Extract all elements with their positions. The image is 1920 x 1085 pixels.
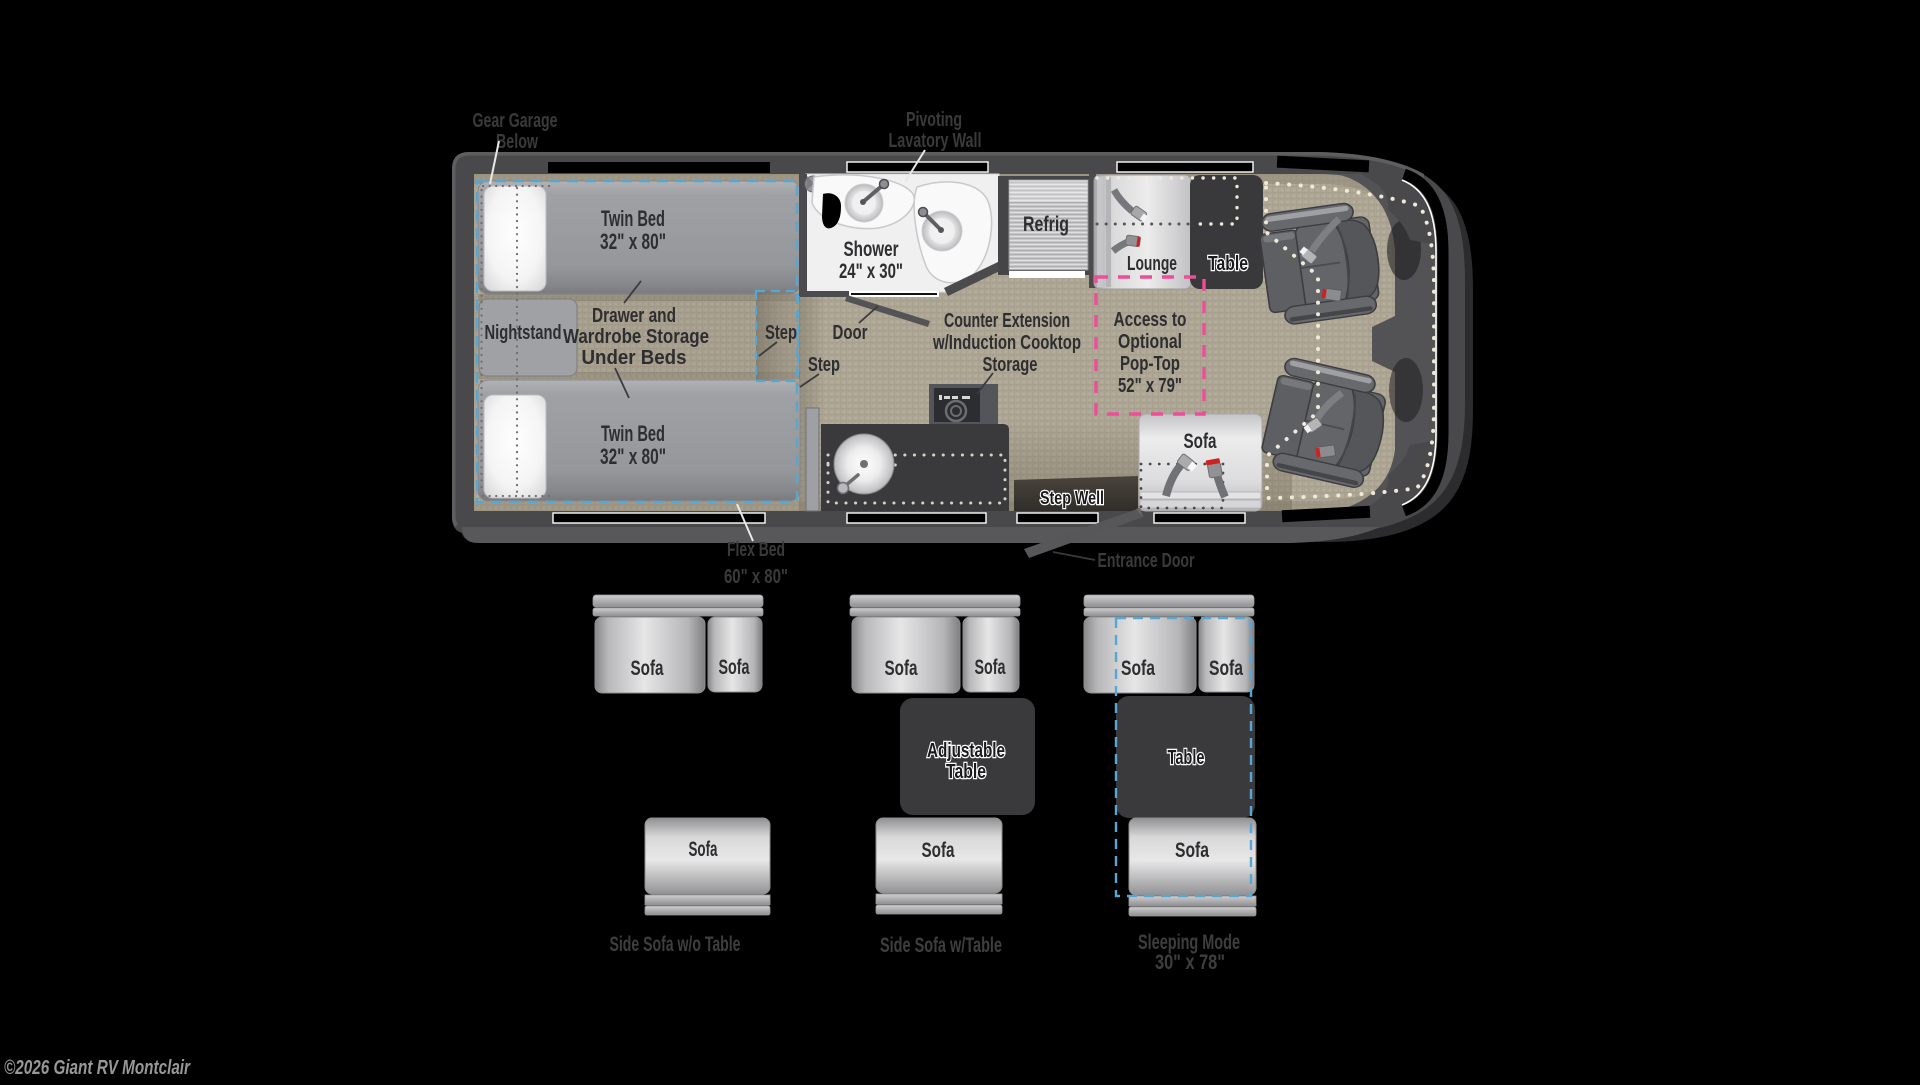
svg-text:Sofa: Sofa <box>631 657 664 680</box>
svg-text:Shower: Shower <box>844 238 899 261</box>
svg-text:Pivoting: Pivoting <box>906 109 962 131</box>
svg-text:Sofa: Sofa <box>689 838 718 861</box>
svg-text:Wardrobe Storage: Wardrobe Storage <box>563 326 709 348</box>
svg-text:24" x 30": 24" x 30" <box>839 260 903 283</box>
svg-text:Nightstand: Nightstand <box>485 322 562 344</box>
svg-text:Lavatory Wall: Lavatory Wall <box>889 130 982 152</box>
svg-text:Sofa: Sofa <box>1121 657 1155 680</box>
svg-text:Sofa: Sofa <box>885 657 918 680</box>
svg-text:Pop-Top: Pop-Top <box>1120 353 1180 375</box>
svg-text:32" x 80": 32" x 80" <box>600 444 666 469</box>
svg-text:Table: Table <box>946 761 986 783</box>
svg-text:30" x 78": 30" x 78" <box>1155 951 1225 974</box>
svg-text:©2026 Giant RV Montclair: ©2026 Giant RV Montclair <box>4 1057 191 1079</box>
svg-text:60" x 80": 60" x 80" <box>724 566 788 588</box>
svg-text:Sofa: Sofa <box>1209 657 1243 680</box>
svg-text:Sofa: Sofa <box>1175 839 1209 862</box>
svg-text:32" x 80": 32" x 80" <box>600 229 666 254</box>
svg-text:Drawer and: Drawer and <box>592 305 676 327</box>
svg-text:Twin Bed: Twin Bed <box>601 421 665 446</box>
svg-text:Optional: Optional <box>1118 331 1182 353</box>
svg-text:w/Induction Cooktop: w/Induction Cooktop <box>932 332 1081 354</box>
svg-text:Step: Step <box>765 322 797 344</box>
svg-text:Twin Bed: Twin Bed <box>601 206 665 231</box>
svg-text:Adjustable: Adjustable <box>927 740 1005 762</box>
svg-text:Counter Extension: Counter Extension <box>944 310 1070 332</box>
svg-text:Refrig: Refrig <box>1023 213 1069 236</box>
svg-text:52" x 79": 52" x 79" <box>1118 375 1182 397</box>
svg-text:Sofa: Sofa <box>719 656 750 679</box>
svg-text:Lounge: Lounge <box>1127 253 1177 275</box>
svg-text:Below: Below <box>496 131 538 153</box>
svg-text:Table: Table <box>1208 253 1248 275</box>
svg-text:Side Sofa w/Table: Side Sofa w/Table <box>880 934 1002 957</box>
svg-text:Sofa: Sofa <box>922 839 955 862</box>
svg-text:Sofa: Sofa <box>975 656 1006 679</box>
svg-text:Access to: Access to <box>1114 309 1187 331</box>
svg-text:Gear Garage: Gear Garage <box>473 110 558 132</box>
svg-text:Step: Step <box>808 354 840 376</box>
svg-text:Sofa: Sofa <box>1184 430 1217 453</box>
svg-text:Door: Door <box>833 322 868 344</box>
svg-text:Table: Table <box>1168 747 1205 769</box>
svg-text:Side Sofa w/o Table: Side Sofa w/o Table <box>610 933 741 956</box>
svg-text:Step Well: Step Well <box>1040 488 1104 508</box>
svg-text:Under Beds: Under Beds <box>582 347 687 369</box>
svg-text:Flex Bed: Flex Bed <box>727 539 785 561</box>
svg-text:Entrance Door: Entrance Door <box>1098 550 1195 572</box>
svg-text:Storage: Storage <box>983 354 1038 376</box>
